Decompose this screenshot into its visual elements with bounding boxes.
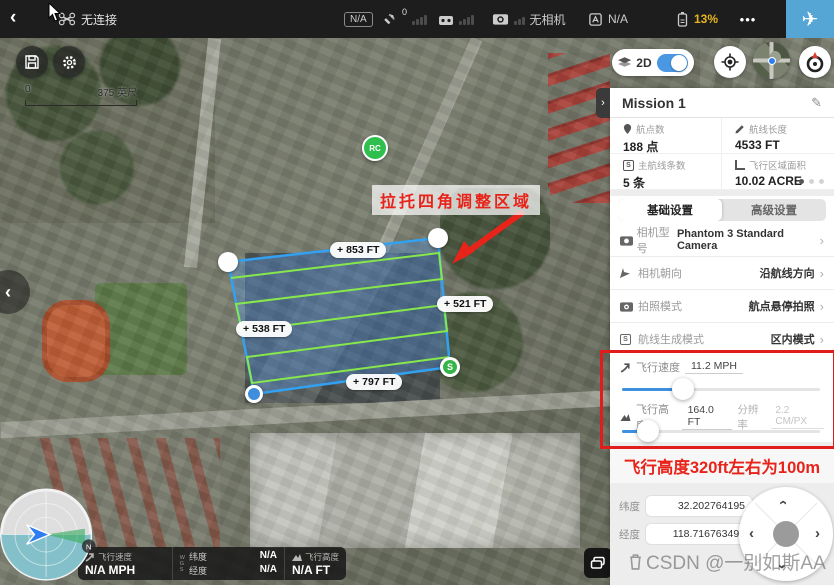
layers-icon — [590, 556, 606, 570]
save-icon — [24, 54, 40, 70]
speed-slider-thumb[interactable] — [672, 378, 694, 400]
chevron-right-icon: › — [820, 266, 824, 281]
chevron-right-icon: › — [820, 299, 824, 314]
status-list[interactable]: N/A — [588, 0, 628, 38]
ground-station-app: ‹ 无连接 N/A 0 — [0, 0, 834, 585]
locate-button[interactable] — [714, 46, 746, 78]
altitude-value: 164.0 FT — [682, 404, 733, 430]
mission-title: Mission 1 — [622, 95, 686, 111]
plus-icon: + — [337, 244, 343, 256]
area-icon — [735, 160, 745, 170]
mission-panel: › Mission 1 ✎ 航点数 188 点 航线长度 4533 FT S主航… — [610, 88, 834, 585]
waypoint-icon — [623, 124, 632, 134]
nudge-up-button[interactable]: › — [775, 500, 790, 505]
altitude-note: 飞行高度320ft左右为100m — [610, 448, 834, 483]
edge-label-right: +521 FT — [437, 296, 493, 312]
rc-signal-bars — [459, 13, 474, 25]
polygon-handle-top-left[interactable] — [218, 252, 238, 272]
edge-label-bottom: +797 FT — [346, 374, 402, 390]
remote-controller-icon — [438, 12, 454, 26]
telemetry-alt-value: N/A FT — [292, 563, 339, 577]
mission-stats: 航点数 188 点 航线长度 4533 FT S主航线条数 5 条 飞行区域面积… — [610, 118, 834, 190]
resolution-label: 分辨率 — [737, 402, 766, 432]
more-menu-button[interactable]: ••• — [728, 0, 768, 38]
edit-mission-icon[interactable]: ✎ — [811, 95, 822, 111]
altitude-slider-row: 飞行高度 164.0 FT 分辨率 2.2 CM/PX — [620, 401, 824, 443]
gps-status[interactable]: 0 — [382, 0, 427, 38]
map-mode-button[interactable] — [584, 548, 612, 578]
altitude-icon — [292, 552, 302, 562]
speed-icon — [620, 362, 631, 373]
setting-photo-mode[interactable]: 拍照模式 航点悬停拍照› — [610, 290, 834, 323]
stat-route-length: 航线长度 4533 FT — [722, 118, 834, 154]
telemetry-bar: 飞行速度 N/A MPH WGS 纬度N/A 经度N/A 飞行高度 N/A FT — [78, 547, 346, 580]
airplane-icon: ✈ — [802, 7, 819, 32]
plus-icon: + — [444, 298, 450, 310]
polygon-handle-bottom-left[interactable] — [245, 385, 263, 403]
compass-reset-button[interactable] — [799, 46, 831, 78]
satellite-icon — [382, 12, 397, 26]
latitude-label: 纬度 — [619, 499, 645, 514]
minimap-button[interactable] — [753, 42, 790, 79]
direction-icon — [620, 268, 636, 279]
page-dots[interactable] — [799, 179, 824, 184]
stat-main-lines: S主航线条数 5 条 — [610, 154, 722, 190]
north-badge: N — [82, 539, 96, 553]
edge-label-left: +538 FT — [236, 321, 292, 337]
plus-icon: + — [243, 323, 249, 335]
rc-location-marker: RC — [362, 135, 388, 161]
s-route-icon: S — [623, 160, 634, 171]
toggle-switch[interactable] — [657, 54, 688, 72]
telemetry-lon-value: N/A — [260, 564, 277, 577]
altitude-icon — [620, 412, 631, 422]
flight-mode-badge[interactable]: N/A — [344, 0, 373, 38]
scale-min: 0 — [25, 84, 31, 99]
map-scale-bar: 0375 英尺 — [25, 84, 137, 106]
2d-3d-toggle[interactable]: 2D — [612, 49, 694, 76]
latitude-input[interactable] — [645, 495, 753, 517]
battery-percent: 13% — [694, 12, 718, 26]
setting-camera-heading[interactable]: 相机朝向 沿航线方向› — [610, 257, 834, 290]
camera-icon — [620, 235, 635, 246]
gps-signal-bars — [412, 13, 427, 25]
map-settings-button[interactable] — [53, 46, 85, 78]
settings-list: 相机型号 Phantom 3 Standard Camera› 相机朝向 沿航线… — [610, 224, 834, 352]
rc-signal[interactable] — [438, 0, 474, 38]
annotation-label: 拉托四角调整区域 — [372, 185, 540, 215]
tab-advanced-settings[interactable]: 高级设置 — [722, 199, 826, 221]
camera-signal-bars — [514, 13, 525, 25]
battery-status[interactable]: 13% — [676, 0, 718, 38]
svg-text:N: N — [86, 543, 92, 552]
camera-status-label: 无相机 — [530, 11, 566, 28]
nudge-center-button[interactable] — [773, 521, 799, 547]
save-mission-button[interactable] — [16, 46, 48, 78]
nudge-left-button[interactable]: ‹ — [749, 526, 754, 541]
aircraft-connection-status: 无连接 — [58, 0, 117, 38]
longitude-input[interactable] — [645, 523, 753, 545]
altitude-slider-thumb[interactable] — [637, 420, 659, 442]
telemetry-lat-value: N/A — [260, 550, 277, 563]
top-status-bar: ‹ 无连接 N/A 0 — [0, 0, 834, 38]
2d-label: 2D — [636, 56, 651, 70]
chevron-right-icon: › — [820, 332, 824, 347]
drone-icon — [58, 12, 76, 26]
nudge-down-button[interactable]: › — [775, 564, 790, 569]
tab-basic-settings[interactable]: 基础设置 — [618, 199, 722, 221]
edge-label-top: +853 FT — [330, 242, 386, 258]
photo-mode-icon — [620, 301, 636, 312]
takeoff-button[interactable]: ✈ — [786, 0, 834, 38]
plus-icon: + — [353, 376, 359, 388]
minimap-position-dot — [768, 57, 776, 65]
route-start-marker[interactable]: S — [440, 357, 460, 377]
telemetry-lon-label: 经度 — [189, 564, 207, 577]
camera-status[interactable]: 无相机 — [492, 0, 566, 38]
scale-max: 375 英尺 — [98, 84, 137, 99]
pencil-icon — [735, 124, 745, 134]
telemetry-speed-label: 飞行速度 — [98, 551, 132, 563]
altitude-slider-track[interactable] — [622, 430, 820, 433]
status-list-icon — [588, 12, 603, 27]
longitude-label: 经度 — [619, 527, 645, 542]
back-button[interactable]: ‹ — [10, 7, 16, 29]
resolution-value: 2.2 CM/PX — [771, 405, 824, 429]
setting-camera-model[interactable]: 相机型号 Phantom 3 Standard Camera› — [610, 224, 834, 257]
collapse-panel-button[interactable]: › — [596, 88, 610, 118]
speed-value: 11.2 MPH — [685, 360, 743, 374]
route-mode-icon: S — [620, 334, 636, 345]
chevron-right-icon: › — [820, 233, 824, 248]
rc-marker-label: RC — [369, 144, 381, 153]
gps-count: 0 — [402, 7, 407, 17]
crosshair-icon — [721, 53, 739, 71]
speed-slider-track[interactable] — [622, 388, 820, 391]
battery-icon — [676, 11, 689, 27]
status-list-value: N/A — [608, 12, 628, 26]
polygon-handle-top-right[interactable] — [428, 228, 448, 248]
telemetry-lat-label: 纬度 — [189, 550, 207, 563]
layers-stack-icon — [618, 57, 631, 69]
mission-header: Mission 1 ✎ — [610, 88, 834, 118]
settings-tabs: 基础设置 高级设置 — [610, 196, 834, 224]
speed-slider-row: 飞行速度 11.2 MPH — [620, 359, 824, 401]
stat-waypoints: 航点数 188 点 — [610, 118, 722, 154]
nudge-dpad: › ‹ › › — [739, 487, 833, 581]
flight-parameters: 飞行速度 11.2 MPH 飞行高度 164.0 FT 分辨率 2.2 CM/P… — [610, 352, 834, 442]
connection-label: 无连接 — [81, 11, 117, 28]
camera-icon — [492, 12, 509, 26]
wgs-tag: WGS — [180, 555, 185, 573]
gear-icon — [61, 54, 78, 71]
nudge-right-button[interactable]: › — [815, 526, 820, 541]
compass-icon — [804, 51, 826, 73]
attitude-compass-indicator: N — [0, 488, 98, 585]
telemetry-alt-label: 飞行高度 — [305, 551, 339, 563]
start-marker-label: S — [443, 360, 457, 374]
stat-area: 飞行区域面积 10.02 ACRE — [722, 154, 834, 190]
